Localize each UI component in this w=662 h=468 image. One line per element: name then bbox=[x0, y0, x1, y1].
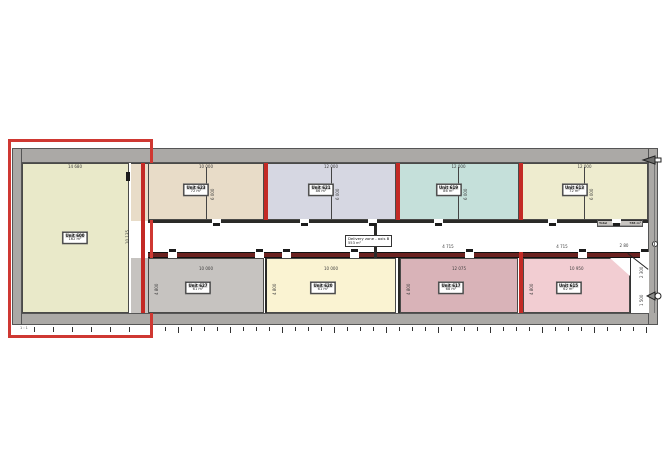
unit-label-top-2: Unit 62186 m² bbox=[308, 184, 333, 196]
fire-wall-4 bbox=[519, 163, 523, 220]
door-chip-top-1 bbox=[213, 223, 220, 226]
door-chip-top-3 bbox=[369, 223, 376, 226]
scale-tick-45 bbox=[646, 327, 647, 333]
door-swing-hinge-icon bbox=[652, 241, 658, 247]
right-dim-1: 2 300 bbox=[639, 267, 644, 278]
dim-top-1: 10 000 bbox=[199, 164, 213, 169]
dim-top-side-2: 6 000 bbox=[335, 189, 340, 200]
scale-tick-37 bbox=[542, 327, 543, 333]
unit-label-top-1: Unit 62372 m² bbox=[183, 184, 208, 196]
door-gap-bottom-7 bbox=[640, 252, 649, 258]
scale-tick-14 bbox=[243, 327, 244, 331]
dim-top-side-1: 6 000 bbox=[210, 189, 215, 200]
scale-tick-41 bbox=[594, 327, 595, 333]
dim-top-side-3: 6 000 bbox=[463, 189, 468, 200]
scale-tick-31 bbox=[464, 327, 465, 331]
scale-tick-22 bbox=[347, 327, 348, 331]
dim-top-2: 12 000 bbox=[324, 164, 338, 169]
scale-tick-10 bbox=[191, 327, 192, 331]
dim-bottom-1: 10 000 bbox=[199, 266, 213, 271]
scale-tick-35 bbox=[516, 327, 517, 331]
scale-tick-9 bbox=[178, 327, 179, 333]
door-chip-top-4 bbox=[435, 223, 442, 226]
scale-tick-34 bbox=[503, 327, 504, 331]
corridor-area-text: 553 m² bbox=[348, 241, 389, 245]
unit-label-bottom-2: Unit 62061 m² bbox=[310, 282, 335, 294]
scale-tick-11 bbox=[204, 327, 205, 331]
scale-tick-42 bbox=[607, 327, 608, 331]
dim-bottom-side-1: 4 800 bbox=[154, 284, 159, 295]
scale-tick-19 bbox=[308, 327, 309, 331]
dim-top-4: 12 000 bbox=[578, 164, 592, 169]
scale-tick-23 bbox=[360, 327, 361, 331]
corridor-dim-1: 4 715 bbox=[442, 244, 453, 249]
door-gap-bottom-5 bbox=[465, 252, 474, 258]
unit-label-left: Unit 600162 m² bbox=[62, 232, 87, 244]
right-dim-2: 1 500 bbox=[639, 295, 644, 306]
left-unit-door-chip bbox=[126, 172, 130, 181]
fire-wall-1 bbox=[141, 163, 145, 313]
scale-tick-21 bbox=[334, 327, 335, 333]
dim-top-side-4: 6 000 bbox=[589, 189, 594, 200]
scale-tick-24 bbox=[373, 327, 374, 331]
unit-label-top-4: Unit 61372 m² bbox=[562, 184, 587, 196]
corridor bbox=[148, 223, 648, 252]
unit-label-bottom-4-area: 62 m² bbox=[559, 288, 578, 292]
dim-left-top: 14 680 bbox=[68, 164, 82, 169]
unit-label-bottom-3-area: 68 m² bbox=[441, 288, 460, 292]
unit-label-top-3-area: 86 m² bbox=[439, 190, 458, 194]
scale-tick-40 bbox=[581, 327, 582, 331]
scale-tick-13 bbox=[230, 327, 231, 333]
scale-tick-25 bbox=[386, 327, 387, 333]
unit-label-bottom-2-area: 61 m² bbox=[313, 288, 332, 292]
scale-tick-36 bbox=[529, 327, 530, 331]
scale-tick-17 bbox=[282, 327, 283, 333]
scale-tick-39 bbox=[568, 327, 569, 331]
unit-label-top-3: Unit 61986 m² bbox=[436, 184, 461, 196]
door-chip-top-5 bbox=[549, 223, 556, 226]
scale-tick-26 bbox=[399, 327, 400, 331]
fire-wall-2 bbox=[264, 163, 268, 220]
unit-label-top-2-area: 86 m² bbox=[311, 190, 330, 194]
door-chip-top-6 bbox=[613, 223, 620, 226]
unit-label-bottom-1-area: 61 m² bbox=[188, 288, 207, 292]
dim-bottom-2: 10 000 bbox=[324, 266, 338, 271]
unit-label-top-1-area: 72 m² bbox=[186, 190, 205, 194]
scale-tick-44 bbox=[633, 327, 634, 331]
dim-top-3: 12 000 bbox=[452, 164, 466, 169]
door-chip-bottom-4 bbox=[351, 249, 358, 252]
scale-tick-30 bbox=[451, 327, 452, 331]
door-chip-bottom-1 bbox=[169, 249, 176, 252]
scale-tick-29 bbox=[438, 327, 439, 333]
scale-tick-8 bbox=[165, 327, 166, 331]
door-chip-bottom-7 bbox=[641, 249, 648, 252]
door-gap-bottom-6 bbox=[578, 252, 587, 258]
scale-tick-15 bbox=[256, 327, 257, 331]
dim-bottom-side-2: 4 800 bbox=[272, 284, 277, 295]
dim-bottom-4: 10 950 bbox=[570, 266, 584, 271]
scale-tick-20 bbox=[321, 327, 322, 331]
unit-label-bottom-4: Unit 61562 m² bbox=[556, 282, 581, 294]
dim-left-side: 10 135 bbox=[125, 230, 130, 244]
scale-tick-43 bbox=[620, 327, 621, 331]
fire-wall-5 bbox=[519, 252, 523, 313]
scale-tick-16 bbox=[269, 327, 270, 331]
scale-tick-38 bbox=[555, 327, 556, 331]
door-gap-bottom-3 bbox=[282, 252, 291, 258]
scale-tick-27 bbox=[412, 327, 413, 331]
scale-tick-28 bbox=[425, 327, 426, 331]
dim-bottom-side-4: 4 800 bbox=[529, 284, 534, 295]
door-chip-bottom-5 bbox=[466, 249, 473, 252]
door-chip-bottom-2 bbox=[256, 249, 263, 252]
door-chip-bottom-3 bbox=[283, 249, 290, 252]
corridor-label: Delivery zone - axis B 553 m² bbox=[345, 235, 392, 247]
corridor-dim-2: 4 715 bbox=[556, 244, 567, 249]
scale-tick-18 bbox=[295, 327, 296, 331]
bottom-divider-2 bbox=[398, 258, 400, 313]
corridor-dim-3: 2 80 bbox=[620, 243, 629, 248]
door-gap-bottom-4 bbox=[350, 252, 359, 258]
legend-total-label: Total bbox=[599, 221, 607, 225]
floor-plan-canvas: Delivery zone - axis B 553 m² 4 715 4 71… bbox=[0, 0, 662, 468]
scale-tick-32 bbox=[477, 327, 478, 331]
bottom-divider-1 bbox=[265, 258, 267, 313]
door-chip-bottom-6 bbox=[579, 249, 586, 252]
unit-label-top-4-area: 72 m² bbox=[565, 190, 584, 194]
valve-icon bbox=[646, 290, 662, 302]
legend-total-value: 788 m² bbox=[629, 221, 641, 225]
door-chip-top-2 bbox=[301, 223, 308, 226]
door-gap-bottom-1 bbox=[168, 252, 177, 258]
unit-label-left-area: 162 m² bbox=[65, 238, 84, 242]
scale-tick-33 bbox=[490, 327, 491, 333]
unit-label-bottom-3: Unit 61768 m² bbox=[438, 282, 463, 294]
dim-bottom-side-3: 4 800 bbox=[406, 284, 411, 295]
dim-bottom-3: 12 075 bbox=[452, 266, 466, 271]
door-gap-bottom-2 bbox=[255, 252, 264, 258]
unit-label-bottom-1: Unit 62761 m² bbox=[185, 282, 210, 294]
scale-tick-12 bbox=[217, 327, 218, 331]
fire-wall-3 bbox=[396, 163, 400, 220]
